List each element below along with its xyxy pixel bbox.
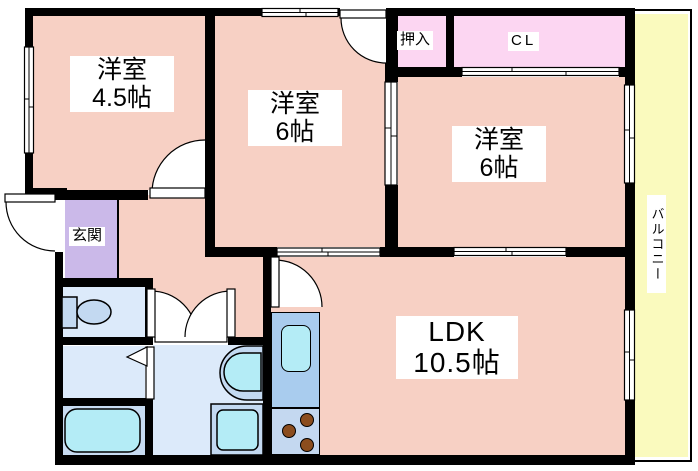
label-bedroom2: 洋室 6帖 <box>248 90 342 146</box>
window-bedroom3-balcony <box>625 85 635 183</box>
toilet-icon <box>62 297 111 328</box>
window-ldk-balcony <box>625 310 635 400</box>
label-oshiire: 押入 <box>397 31 433 50</box>
label-genkan: 玄関 <box>69 227 105 246</box>
genkan-text: 玄関 <box>72 227 102 244</box>
door-fold-washroom <box>127 347 154 399</box>
door-swing-double <box>147 289 235 342</box>
ldk-size: 10.5帖 <box>396 347 518 378</box>
bedroom1-size: 4.5帖 <box>70 84 174 112</box>
balcony-text: バルコニー <box>650 207 665 282</box>
door-swing-bedroom2 <box>340 10 386 63</box>
sliding-door-bedroom3-ldk <box>454 248 566 256</box>
sliding-door-bedroom2-ldk <box>277 248 380 256</box>
cl-text: CL <box>511 32 536 49</box>
label-bedroom1: 洋室 4.5帖 <box>70 56 174 112</box>
sliding-door-cl <box>462 68 619 76</box>
label-balcony: バルコニー <box>647 195 666 293</box>
floor-plan: 洋室 4.5帖 洋室 6帖 洋室 6帖 LDK 10.5帖 押入 CL 玄関 バ… <box>0 0 698 471</box>
bathtub-icon <box>65 409 140 452</box>
ldk-type: LDK <box>396 316 518 347</box>
window-bedroom1-left <box>25 47 34 153</box>
window-bedroom2-top <box>262 9 338 17</box>
label-cl: CL <box>508 32 539 51</box>
door-swing-ldk <box>271 257 322 307</box>
label-ldk: LDK 10.5帖 <box>396 316 518 379</box>
oshiire-text: 押入 <box>400 31 430 48</box>
washbasin-icon <box>220 346 263 400</box>
bedroom2-type: 洋室 <box>248 90 342 118</box>
door-swing-entry <box>5 194 55 251</box>
door-swing-bedroom1 <box>150 140 205 198</box>
sliding-door-bedroom2-bedroom3 <box>385 82 397 185</box>
bedroom3-type: 洋室 <box>452 126 546 154</box>
label-bedroom3: 洋室 6帖 <box>452 126 546 182</box>
washing-machine-icon <box>211 404 263 455</box>
bedroom2-size: 6帖 <box>248 118 342 146</box>
bedroom3-size: 6帖 <box>452 154 546 182</box>
bedroom1-type: 洋室 <box>70 56 174 84</box>
